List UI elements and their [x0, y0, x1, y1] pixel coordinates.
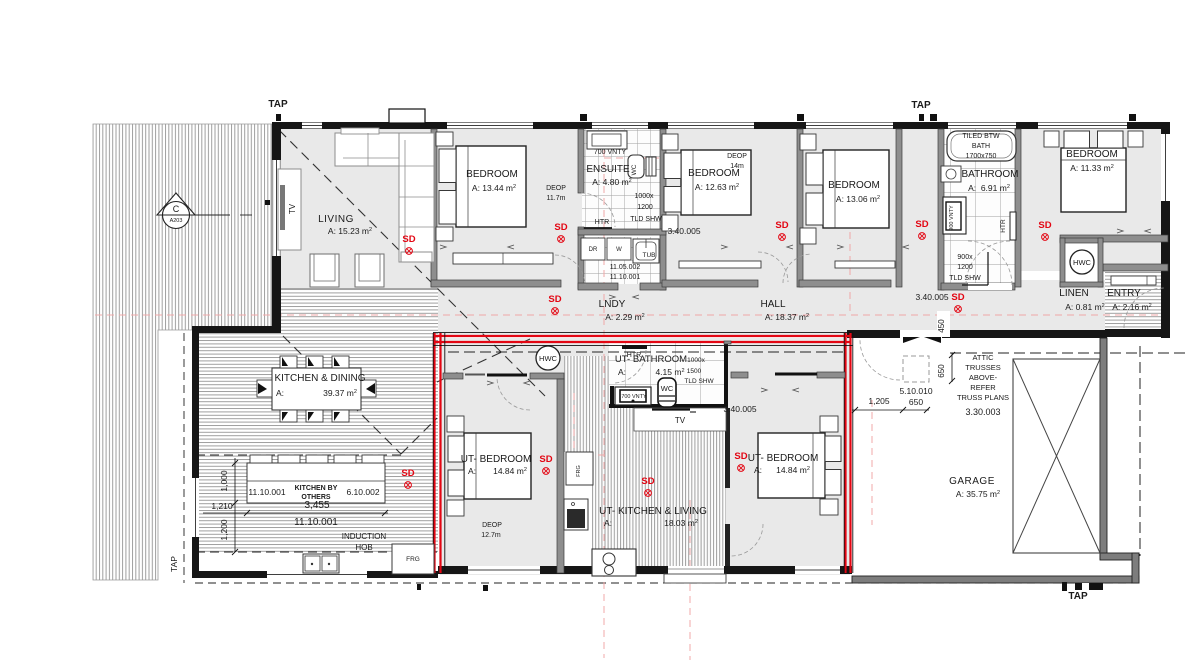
svg-text:A: 35.75 m2: A: 35.75 m2 [956, 489, 1000, 499]
svg-text:SD: SD [402, 234, 415, 245]
svg-text:SD: SD [775, 220, 788, 231]
svg-text:A: 13.06 m2: A: 13.06 m2 [836, 194, 880, 204]
svg-text:SD: SD [915, 219, 928, 230]
svg-text:BATH: BATH [972, 143, 990, 150]
svg-text:UT- BEDROOM: UT- BEDROOM [748, 453, 819, 464]
svg-text:A: 2.16 m2: A: 2.16 m2 [1112, 302, 1151, 312]
svg-text:3.30.003: 3.30.003 [965, 407, 1000, 417]
svg-text:1,000: 1,000 [219, 470, 229, 492]
svg-text:REFER: REFER [970, 383, 996, 392]
svg-text:1500: 1500 [687, 368, 702, 375]
svg-text:A: 18.37 m2: A: 18.37 m2 [765, 312, 809, 322]
svg-text:14m: 14m [730, 163, 744, 170]
svg-text:A:: A: [468, 466, 476, 476]
svg-text:SD: SD [539, 454, 552, 465]
svg-text:TRUSS PLANS: TRUSS PLANS [957, 393, 1009, 402]
svg-text:TAP: TAP [911, 100, 931, 111]
svg-text:BATHROOM: BATHROOM [961, 169, 1018, 180]
svg-text:A: 2.29 m2: A: 2.29 m2 [605, 312, 644, 322]
svg-text:650: 650 [937, 364, 946, 378]
svg-text:W: W [616, 247, 622, 253]
svg-text:1,205: 1,205 [868, 396, 890, 406]
svg-text:UT- BATHROOM: UT- BATHROOM [615, 354, 687, 365]
svg-text:TRUSSES: TRUSSES [965, 363, 1000, 372]
svg-text:ATTIC: ATTIC [972, 353, 994, 362]
svg-text:SD: SD [548, 294, 561, 305]
svg-text:1,200: 1,200 [219, 519, 229, 541]
svg-text:14.84 m2: 14.84 m2 [776, 465, 810, 475]
svg-text:BEDROOM: BEDROOM [1066, 149, 1118, 160]
svg-text:UT- KITCHEN & LIVING: UT- KITCHEN & LIVING [599, 506, 707, 517]
svg-text:A203: A203 [170, 218, 183, 224]
svg-text:LNDY: LNDY [599, 299, 626, 310]
svg-text:11.10.001: 11.10.001 [248, 487, 285, 497]
svg-text:TLD SHW: TLD SHW [684, 378, 714, 385]
svg-text:SD: SD [401, 468, 414, 479]
svg-text:A:: A: [276, 388, 284, 398]
svg-text:SD: SD [734, 451, 747, 462]
svg-text:A: 15.23 m2: A: 15.23 m2 [328, 226, 372, 236]
svg-text:DEOP: DEOP [727, 153, 747, 160]
svg-text:11.10.001: 11.10.001 [610, 274, 641, 281]
svg-text:DR: DR [589, 247, 598, 253]
svg-text:UT- BEDROOM: UT- BEDROOM [461, 454, 532, 465]
svg-text:900x: 900x [957, 254, 973, 261]
svg-text:1200: 1200 [957, 264, 973, 271]
svg-text:700 VNTY: 700 VNTY [594, 149, 627, 156]
svg-text:C: C [173, 204, 180, 214]
svg-text:3.40.005: 3.40.005 [915, 292, 948, 302]
svg-text:1000x: 1000x [634, 193, 654, 200]
svg-text:18.03 m2: 18.03 m2 [664, 518, 698, 528]
svg-text:TV: TV [675, 416, 686, 425]
svg-text:SD: SD [1038, 220, 1051, 231]
svg-text:11.7m: 11.7m [547, 195, 566, 202]
svg-text:HTR: HTR [595, 219, 609, 226]
svg-text:1200: 1200 [637, 204, 653, 211]
svg-text:HTR: HTR [627, 352, 641, 359]
svg-text:ABOVE-: ABOVE- [969, 373, 998, 382]
svg-text:650: 650 [909, 397, 923, 407]
svg-text:TLD SHW: TLD SHW [949, 275, 981, 282]
svg-text:1000x: 1000x [687, 357, 705, 364]
svg-text:1,210: 1,210 [211, 501, 233, 511]
svg-text:12.7m: 12.7m [481, 532, 501, 539]
svg-text:BEDROOM: BEDROOM [466, 169, 518, 180]
svg-text:HWC: HWC [539, 354, 557, 363]
svg-text:INDUCTION: INDUCTION [342, 532, 387, 541]
svg-text:WC: WC [661, 384, 674, 393]
svg-text:HTR: HTR [1000, 219, 1007, 233]
svg-text:LINEN: LINEN [1059, 288, 1088, 299]
svg-text:ENSUITE: ENSUITE [586, 164, 630, 175]
svg-text:TAP: TAP [169, 556, 179, 572]
svg-text:TV: TV [288, 203, 297, 214]
svg-text:A: 11.33 m2: A: 11.33 m2 [1070, 163, 1114, 173]
svg-text:11.05.002: 11.05.002 [610, 264, 641, 271]
svg-text:TAP: TAP [1068, 591, 1088, 602]
svg-text:LIVING: LIVING [318, 214, 354, 225]
svg-text:KITCHEN BY: KITCHEN BY [295, 485, 338, 492]
svg-text:SD: SD [641, 476, 654, 487]
svg-text:TLD SHW: TLD SHW [630, 216, 662, 223]
svg-text:1700x750: 1700x750 [966, 153, 997, 160]
svg-text:450: 450 [937, 319, 946, 333]
svg-text:3.40.005: 3.40.005 [723, 404, 756, 414]
svg-text:A:: A: [618, 367, 626, 377]
svg-text:3,455: 3,455 [304, 500, 329, 511]
svg-text:SD: SD [951, 292, 964, 303]
svg-text:GARAGE: GARAGE [949, 476, 995, 487]
svg-text:TAP: TAP [268, 99, 288, 110]
svg-text:TILED BTW: TILED BTW [962, 133, 1000, 140]
svg-text:DEOP: DEOP [482, 522, 502, 529]
svg-text:11.10.001: 11.10.001 [294, 517, 338, 528]
svg-text:A: 13.44 m2: A: 13.44 m2 [472, 183, 516, 193]
svg-text:BEDROOM: BEDROOM [828, 180, 880, 191]
svg-text:SD: SD [554, 222, 567, 233]
svg-text:TUB: TUB [643, 252, 656, 259]
svg-text:FRG: FRG [406, 556, 420, 563]
svg-text:FRG: FRG [576, 465, 582, 477]
svg-text:ENTRY: ENTRY [1107, 288, 1141, 299]
svg-text:HWC: HWC [1073, 258, 1091, 267]
svg-text:3.40.005: 3.40.005 [667, 226, 700, 236]
svg-text:A: 12.63 m2: A: 12.63 m2 [695, 182, 739, 192]
svg-text:14.84 m2: 14.84 m2 [493, 466, 527, 476]
svg-text:4.15 m2: 4.15 m2 [655, 367, 684, 377]
svg-text:A: 4.80 m2: A: 4.80 m2 [592, 177, 631, 187]
svg-text:A: 6.91 m2: A: 6.91 m2 [968, 183, 1010, 193]
svg-text:900 VNTY: 900 VNTY [949, 205, 955, 231]
svg-text:A:: A: [754, 465, 762, 475]
svg-text:A: 0.81 m2: A: 0.81 m2 [1065, 302, 1104, 312]
svg-text:KITCHEN & DINING: KITCHEN & DINING [274, 373, 365, 384]
svg-text:HALL: HALL [760, 299, 785, 310]
svg-text:HOB: HOB [355, 543, 372, 552]
svg-text:WC: WC [631, 164, 638, 175]
svg-text:A:: A: [604, 518, 612, 528]
svg-text:6.10.002: 6.10.002 [346, 487, 379, 497]
svg-text:700 VNTY: 700 VNTY [621, 394, 647, 400]
svg-text:39.37 m2: 39.37 m2 [323, 388, 357, 398]
svg-text:DEOP: DEOP [546, 185, 566, 192]
svg-text:5.10.010: 5.10.010 [899, 386, 932, 396]
